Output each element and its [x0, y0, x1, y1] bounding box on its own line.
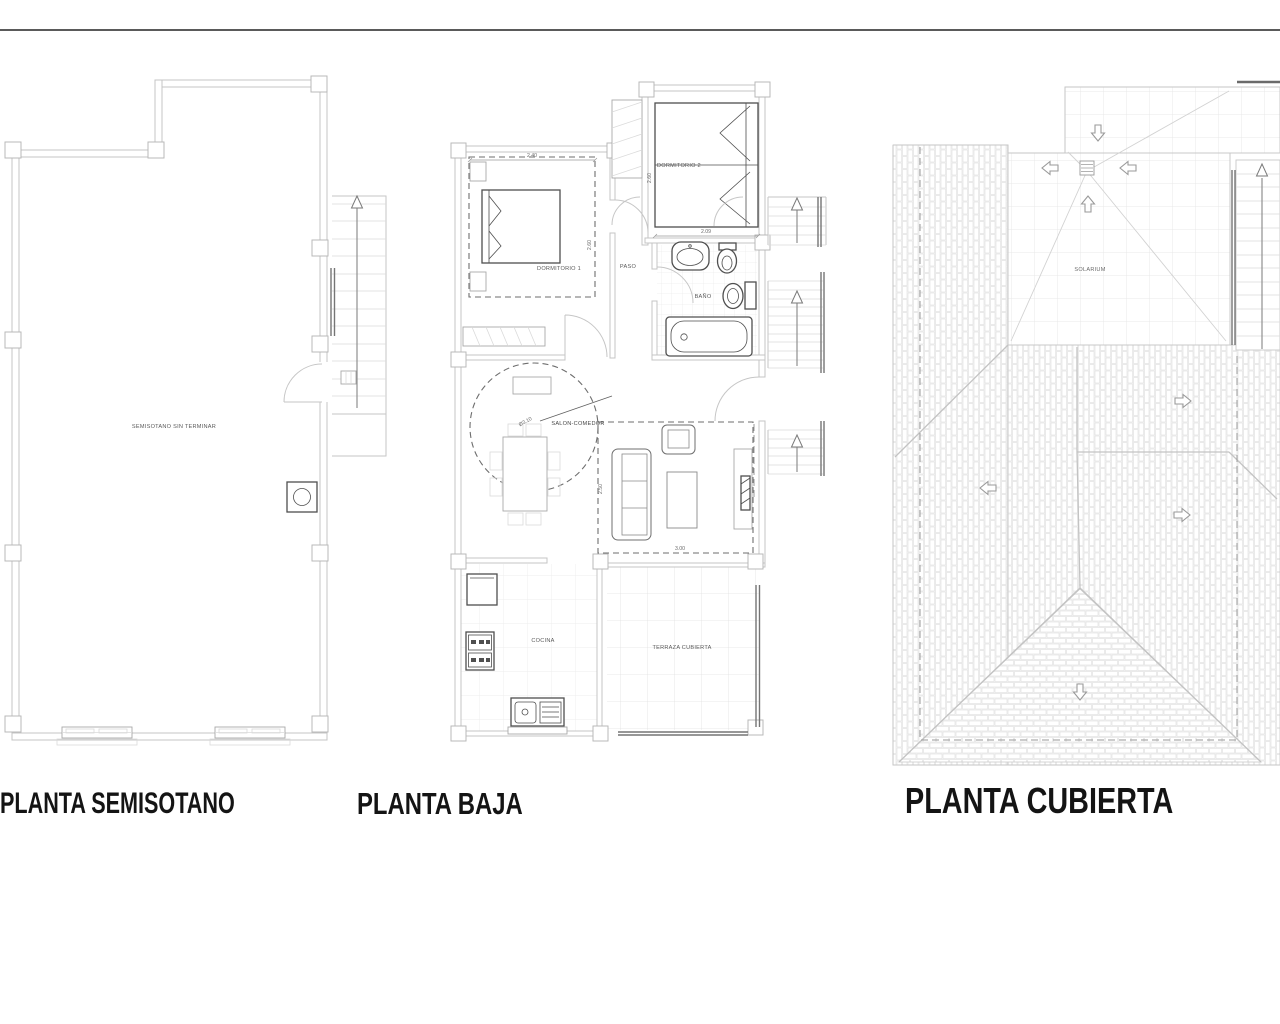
- closet-hatched: [612, 100, 642, 178]
- cubierta-staircase: [1232, 160, 1280, 350]
- semisotano-staircase: [331, 196, 386, 456]
- bathtub: [666, 317, 752, 356]
- semisotano-columns: [5, 76, 328, 732]
- roof-tiles-left: [893, 145, 1008, 765]
- room-label-dormitorio1: DORMITORIO 1: [537, 266, 581, 272]
- washbasin: [672, 242, 709, 270]
- title-planta-baja: PLANTA BAJA: [357, 788, 523, 819]
- coffee-table: [667, 472, 697, 528]
- nightstand: [470, 162, 486, 181]
- room-label-bano: BAÑO: [695, 293, 712, 300]
- sofa: [612, 449, 651, 540]
- room-label-solarium: SOLARIUM: [1074, 267, 1105, 273]
- tv-unit: [734, 449, 752, 529]
- plan-cubierta: SOLARIUM: [893, 82, 1280, 765]
- room-label-salon: SALON-COMEDOR: [551, 421, 604, 427]
- nightstand: [470, 272, 486, 291]
- salon-comedor: Ø3.10 SALON-COMEDOR 2.5: [470, 363, 753, 553]
- fridge: [467, 574, 497, 605]
- dim-salon-circle: Ø3.10: [518, 416, 533, 428]
- roof-drain: [1080, 161, 1094, 175]
- wardrobe: [463, 327, 545, 346]
- dormitorio2: 2.09 2.60 DORMITORIO 2: [647, 103, 760, 238]
- leader-line: [540, 396, 612, 421]
- cooker: [466, 632, 494, 670]
- bidet: [718, 243, 737, 273]
- room-label-terraza: TERRAZA CUBIERTA: [652, 645, 711, 651]
- title-planta-semisotano: PLANTA SEMISOTANO: [0, 789, 235, 819]
- plan-semisotano: SEMISOTANO SIN TERMINAR: [5, 76, 386, 745]
- window-symbol: [341, 371, 356, 384]
- dim-dorm1-depth: 2.60: [587, 240, 593, 250]
- armchair: [662, 425, 695, 454]
- drawing-sheet: SEMISOTANO SIN TERMINAR: [0, 0, 1280, 1024]
- dim-salon-depth: 2.50: [598, 484, 604, 494]
- dining-table: [490, 424, 560, 525]
- sideboard: [513, 377, 551, 394]
- floorplan-drawing: SEMISOTANO SIN TERMINAR: [0, 0, 1280, 1024]
- room-label-dormitorio2: DORMITORIO 2: [657, 163, 701, 169]
- semisotano-door: [284, 364, 322, 402]
- dim-dorm1-width: 2.40: [527, 153, 537, 159]
- kitchen-sink: [508, 698, 567, 734]
- room-label-semisotano: SEMISOTANO SIN TERMINAR: [132, 424, 216, 430]
- dim-salon-width: 3.00: [675, 546, 685, 552]
- semisotano-walls: [12, 80, 328, 740]
- plan-baja: 2.40 2.60 DORMITORIO 1 2.09: [451, 82, 826, 741]
- title-planta-cubierta: PLANTA CUBIERTA: [905, 783, 1173, 819]
- bed-double: [482, 190, 560, 263]
- room-label-cocina: COCINA: [531, 638, 554, 644]
- dim-dorm2-width: 2.09: [701, 229, 711, 235]
- boiler: [287, 482, 317, 512]
- room-label-paso: PASO: [620, 264, 637, 270]
- dim-dorm2-depth: 2.60: [647, 173, 653, 183]
- toilet: [723, 282, 756, 309]
